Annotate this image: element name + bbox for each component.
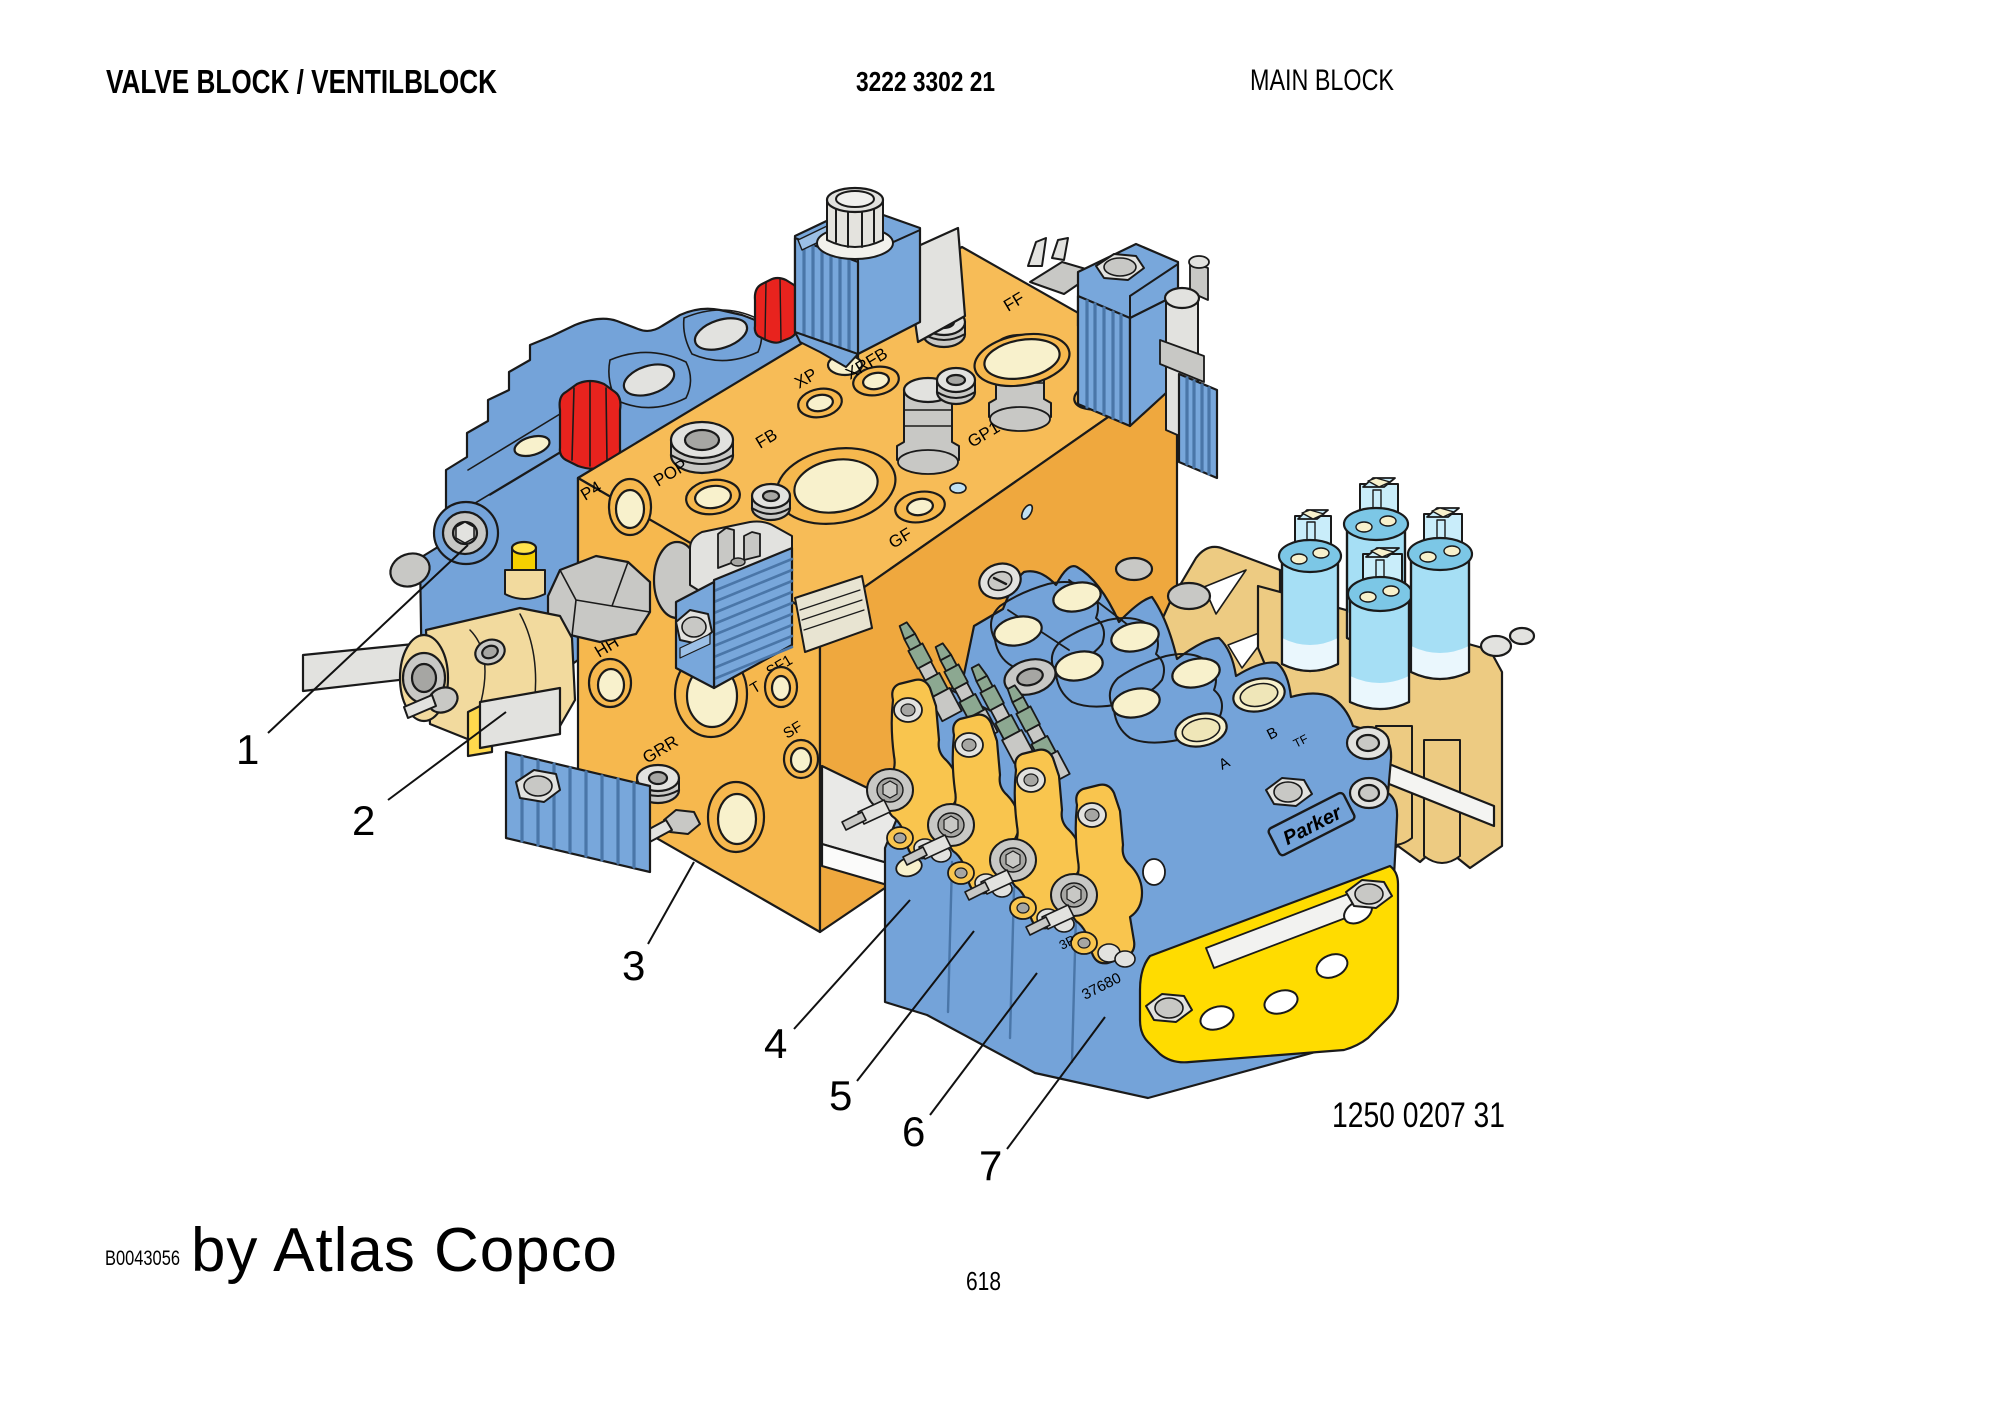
svg-text:6: 6 bbox=[902, 1108, 925, 1155]
svg-text:4: 4 bbox=[764, 1020, 787, 1067]
svg-text:by Atlas Copco: by Atlas Copco bbox=[191, 1216, 617, 1285]
svg-text:B0043056: B0043056 bbox=[105, 1247, 180, 1270]
svg-text:3222 3302 21: 3222 3302 21 bbox=[856, 66, 995, 97]
svg-text:2: 2 bbox=[352, 797, 375, 844]
svg-text:618: 618 bbox=[966, 1266, 1001, 1296]
svg-text:1: 1 bbox=[236, 726, 259, 773]
svg-text:VALVE BLOCK / VENTILBLOCK: VALVE BLOCK / VENTILBLOCK bbox=[106, 63, 497, 100]
svg-text:3: 3 bbox=[622, 942, 645, 989]
svg-text:5: 5 bbox=[829, 1072, 852, 1119]
svg-text:MAIN BLOCK: MAIN BLOCK bbox=[1250, 64, 1394, 97]
svg-text:1250 0207 31: 1250 0207 31 bbox=[1332, 1096, 1505, 1135]
svg-text:7: 7 bbox=[979, 1142, 1002, 1189]
